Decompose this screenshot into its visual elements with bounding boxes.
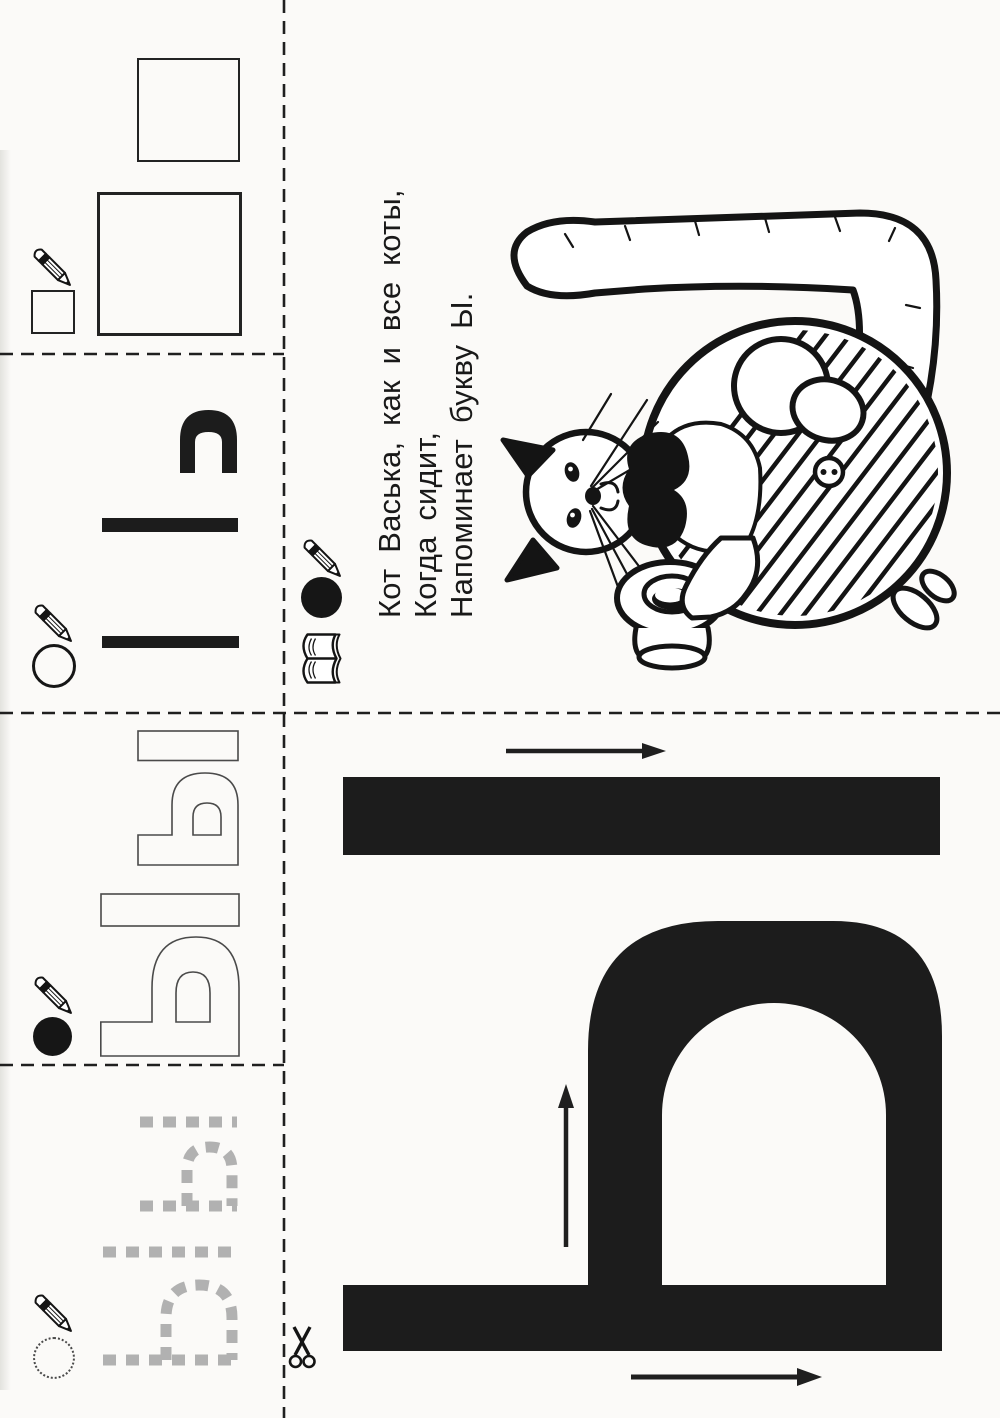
outline-letter-1 [137, 730, 239, 866]
pencil-icon [31, 244, 75, 294]
trace-letter-2 [100, 1242, 240, 1370]
circle-outline-icon [32, 644, 76, 688]
letter-bar-1 [102, 518, 238, 532]
big-letter-bar [343, 777, 940, 855]
dotted-circle-icon [33, 1337, 75, 1379]
filled-circle-icon [301, 577, 342, 618]
poem-text: Кот Васька, как и все коты, Когда сидит,… [372, 136, 482, 618]
square-outline-sample [31, 290, 75, 334]
poem-line-3: Напоминает букву Ы. [444, 136, 480, 618]
pencil-icon [32, 972, 76, 1022]
outline-letter-2 [100, 893, 240, 1057]
square-outline-large-2 [97, 192, 242, 336]
pencil-icon [32, 1290, 76, 1340]
cat-illustration [495, 188, 965, 675]
pencil-icon [32, 600, 76, 650]
square-outline-large-1 [137, 58, 240, 162]
book-icon [301, 633, 344, 685]
trace-letter-1 [103, 1107, 240, 1219]
letter-bar-2 [102, 636, 239, 648]
worksheet-page: Кот Васька, как и все коты, Когда сидит,… [0, 0, 1000, 1418]
scissors-icon [289, 1325, 317, 1371]
poem-line-2: Когда сидит, [408, 136, 444, 618]
letter-arch-shape [180, 410, 237, 473]
big-letter-body [343, 921, 942, 1351]
poem-line-1: Кот Васька, как и все коты, [372, 136, 408, 618]
filled-circle-icon [33, 1017, 72, 1056]
